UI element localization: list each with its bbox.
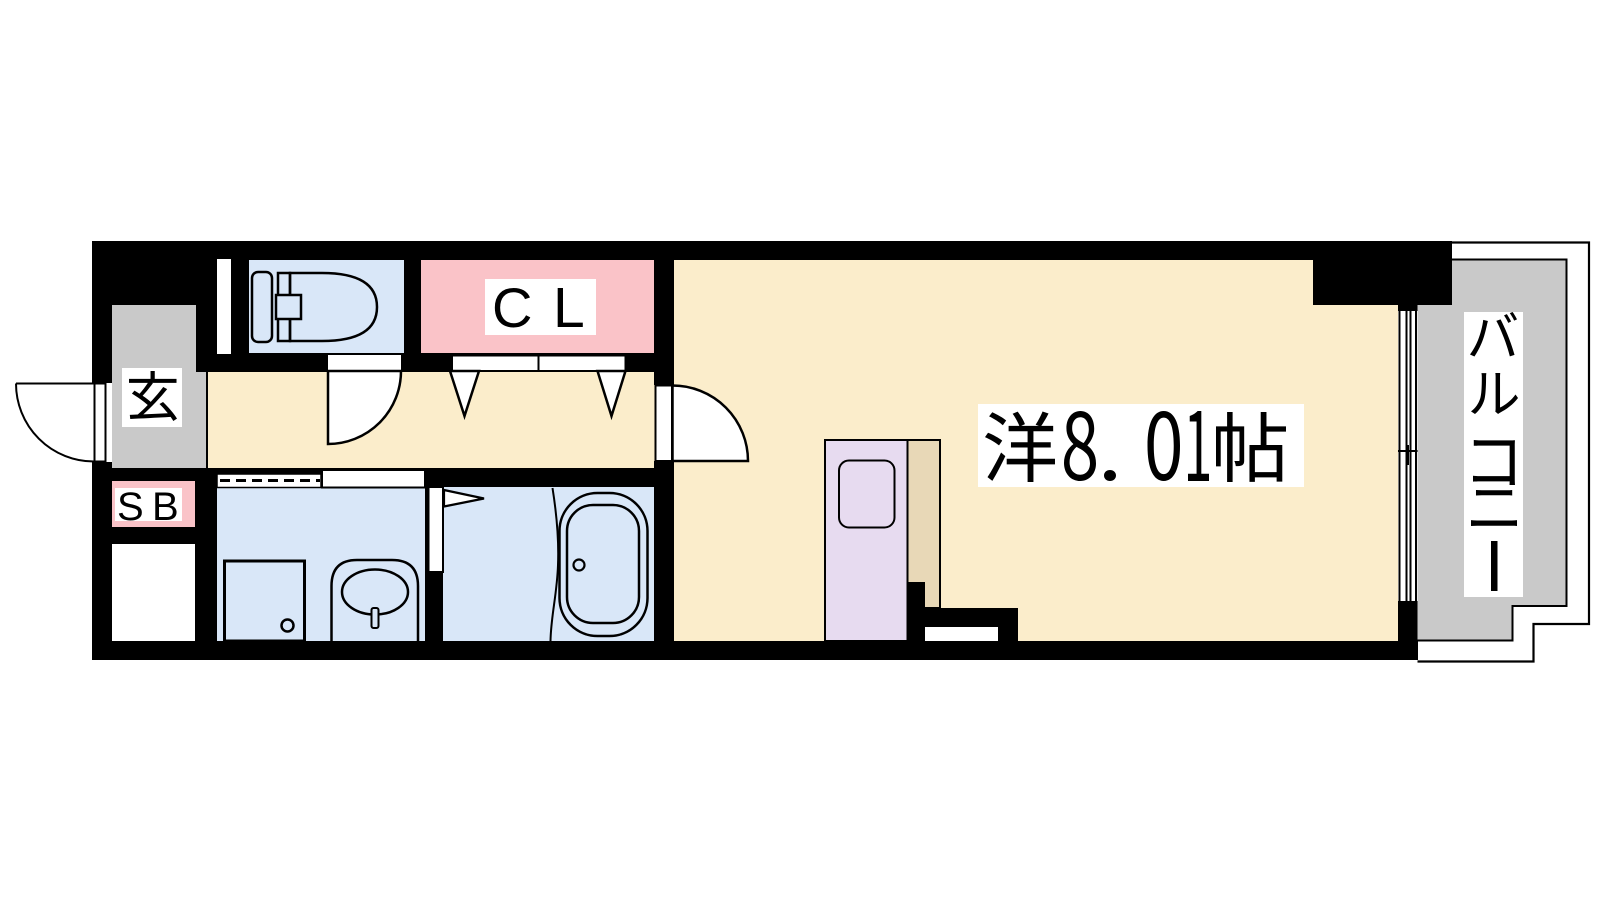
svg-text:S: S bbox=[117, 485, 144, 529]
svg-text:C: C bbox=[492, 276, 532, 339]
svg-text:L: L bbox=[553, 276, 585, 340]
svg-text:B: B bbox=[152, 485, 179, 529]
